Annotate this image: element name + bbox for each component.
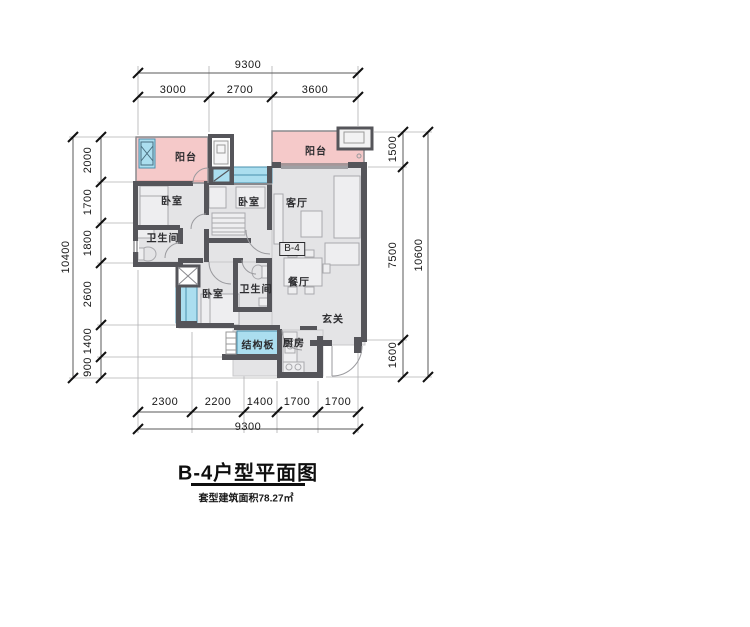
- dim-left-segment-6: 900: [82, 357, 94, 377]
- dim-left-segment-5: 1400: [82, 328, 94, 354]
- room-label-bathroom-middle: 卫生间: [240, 281, 273, 296]
- room-label-bedroom-bottom: 卧室: [202, 286, 224, 301]
- dim-bottom-segment-4: 1700: [284, 396, 310, 408]
- dim-top-segment-1: 3000: [160, 84, 186, 96]
- room-label-bedroom-left: 卧室: [161, 193, 183, 208]
- dim-top-segment-2: 2700: [227, 84, 253, 96]
- room-label-entry: 玄关: [322, 311, 344, 326]
- room-label-dining-room: 餐厅: [288, 274, 310, 289]
- dim-left-segment-3: 1800: [82, 230, 94, 256]
- dim-right-segment-3: 1600: [387, 342, 399, 368]
- title-underline: [191, 483, 305, 486]
- room-label-kitchen: 厨房: [283, 335, 305, 350]
- room-label-structural-slab: 结构板: [242, 337, 275, 352]
- room-label-balcony-left: 阳台: [175, 149, 197, 164]
- dim-bottom-total: 9300: [235, 421, 261, 433]
- plan-title: B-4户型平面图: [178, 457, 318, 486]
- floor-plan-page: 阳台 阳台 卧室 卧室 卧室 卫生间 卫生间 客厅 餐厅 玄关 厨房 结构板 B…: [0, 0, 750, 627]
- dim-bottom-segment-2: 2200: [205, 396, 231, 408]
- unit-label-badge: B-4: [279, 242, 305, 256]
- dim-right-segment-2: 7500: [387, 242, 399, 268]
- dim-left-segment-1: 2000: [82, 147, 94, 173]
- dim-top-segment-3: 3600: [302, 84, 328, 96]
- dim-top-total: 9300: [235, 59, 261, 71]
- slab-hatch-strip: [226, 332, 236, 354]
- room-label-living-room: 客厅: [286, 195, 308, 210]
- dim-left-segment-4: 2600: [82, 281, 94, 307]
- dim-right-segment-1: 1500: [387, 136, 399, 162]
- balcony-counter-box: [338, 128, 372, 149]
- dim-right-total: 10600: [413, 238, 425, 271]
- dim-left-segment-2: 1700: [82, 189, 94, 215]
- floor-plan-drawing: [0, 0, 750, 627]
- room-label-bathroom-left: 卫生间: [147, 230, 180, 245]
- dim-bottom-segment-1: 2300: [152, 396, 178, 408]
- dim-bottom-segment-5: 1700: [325, 396, 351, 408]
- room-label-bedroom-middle: 卧室: [238, 194, 260, 209]
- dim-left-total: 10400: [60, 240, 72, 273]
- plan-subtitle: 套型建筑面积78.27㎡: [198, 490, 293, 505]
- dim-bottom-segment-3: 1400: [247, 396, 273, 408]
- room-label-balcony-right: 阳台: [305, 143, 327, 158]
